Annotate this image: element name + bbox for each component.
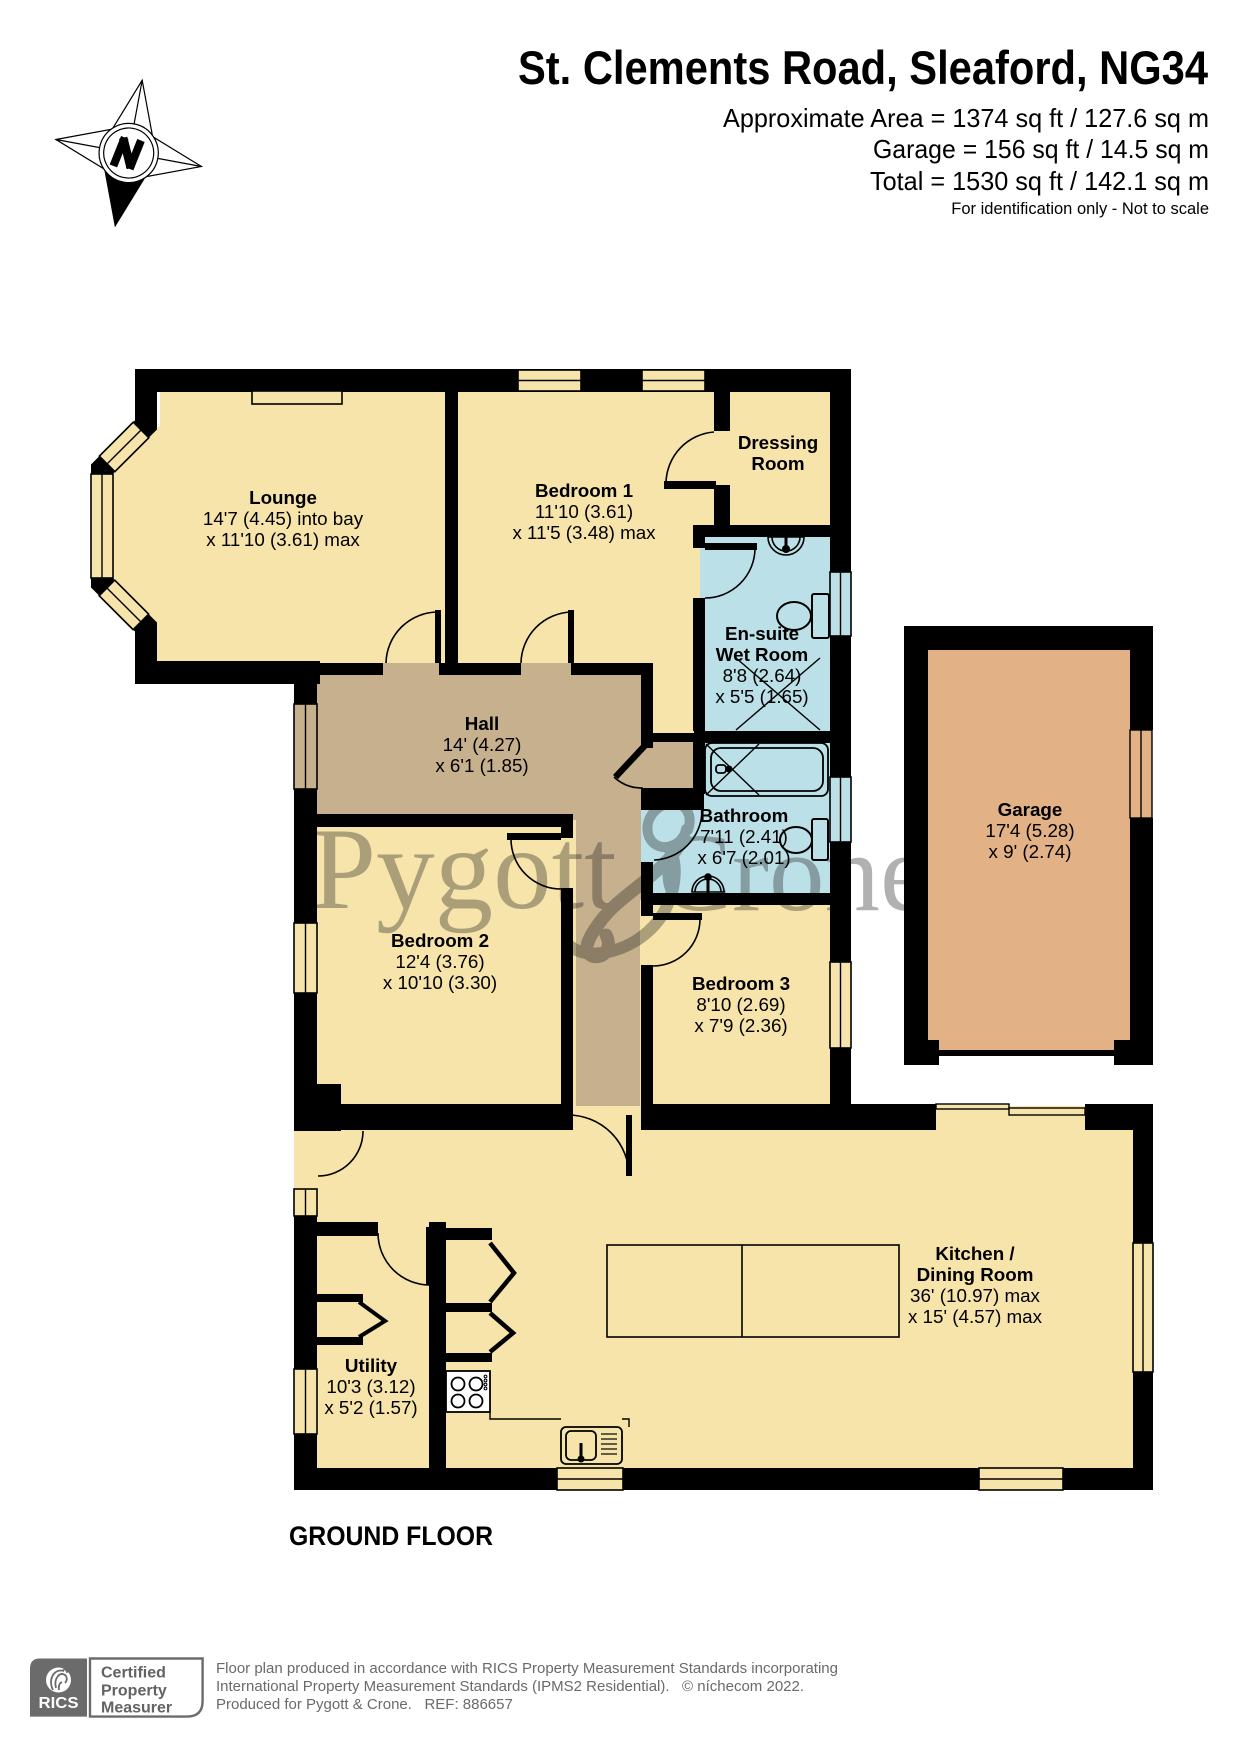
- svg-text:x 10'10 (3.30): x 10'10 (3.30): [383, 972, 497, 993]
- svg-text:Approximate Area = 1374 sq ft: Approximate Area = 1374 sq ft / 127.6 sq…: [723, 103, 1209, 133]
- svg-text:8'8 (2.64): 8'8 (2.64): [723, 665, 802, 686]
- svg-text:Bedroom 2: Bedroom 2: [391, 930, 489, 951]
- svg-text:x 5'5 (1.65): x 5'5 (1.65): [715, 686, 808, 707]
- svg-text:Dressing: Dressing: [738, 432, 818, 453]
- svg-text:14' (4.27): 14' (4.27): [443, 734, 522, 755]
- svg-text:Bedroom 3: Bedroom 3: [692, 973, 790, 994]
- svg-text:x 11'5 (3.48) max: x 11'5 (3.48) max: [512, 522, 656, 543]
- svg-text:St. Clements Road, Sleaford, N: St. Clements Road, Sleaford, NG34: [518, 41, 1208, 94]
- svg-text:x 15' (4.57) max: x 15' (4.57) max: [908, 1306, 1043, 1327]
- svg-text:x 9' (2.74): x 9' (2.74): [989, 841, 1072, 862]
- svg-text:Property: Property: [101, 1683, 167, 1700]
- svg-text:Bedroom 1: Bedroom 1: [535, 480, 633, 501]
- svg-text:Garage = 156 sq ft / 14.5 sq m: Garage = 156 sq ft / 14.5 sq m: [873, 134, 1209, 164]
- svg-text:Kitchen /: Kitchen /: [935, 1243, 1015, 1264]
- svg-text:Utility: Utility: [345, 1355, 398, 1376]
- svg-text:14'7 (4.45) into bay: 14'7 (4.45) into bay: [203, 508, 364, 529]
- svg-text:36' (10.97) max: 36' (10.97) max: [910, 1285, 1041, 1306]
- svg-text:Bathroom: Bathroom: [700, 805, 789, 826]
- svg-text:Dining Room: Dining Room: [917, 1264, 1034, 1285]
- svg-text:x 7'9 (2.36): x 7'9 (2.36): [694, 1015, 787, 1036]
- svg-text:Floor plan produced in accorda: Floor plan produced in accordance with R…: [216, 1660, 838, 1677]
- svg-text:12'4 (3.76): 12'4 (3.76): [395, 951, 484, 972]
- svg-text:x 5'2 (1.57): x 5'2 (1.57): [324, 1397, 417, 1418]
- svg-text:11'10 (3.61): 11'10 (3.61): [535, 501, 633, 522]
- svg-text:Wet Room: Wet Room: [716, 644, 809, 665]
- svg-text:Total = 1530 sq ft / 142.1 sq: Total = 1530 sq ft / 142.1 sq m: [870, 166, 1209, 196]
- svg-text:x 6'7 (2.01): x 6'7 (2.01): [697, 847, 790, 868]
- svg-text:8'10 (2.69): 8'10 (2.69): [696, 994, 785, 1015]
- svg-text:International Property Measure: International Property Measurement Stand…: [216, 1678, 804, 1695]
- svg-text:x 6'1 (1.85): x 6'1 (1.85): [435, 755, 528, 776]
- svg-text:Garage: Garage: [998, 799, 1063, 820]
- svg-text:En-suite: En-suite: [725, 623, 799, 644]
- svg-text:Hall: Hall: [465, 713, 499, 734]
- svg-text:Certified: Certified: [101, 1665, 166, 1682]
- svg-text:RICS: RICS: [39, 1695, 79, 1712]
- svg-text:10'3 (3.12): 10'3 (3.12): [326, 1376, 415, 1397]
- svg-text:GROUND FLOOR: GROUND FLOOR: [289, 1521, 493, 1551]
- svg-text:x 11'10 (3.61) max: x 11'10 (3.61) max: [206, 529, 360, 550]
- svg-text:Measurer: Measurer: [101, 1700, 172, 1717]
- svg-text:Room: Room: [751, 453, 804, 474]
- svg-text:Produced for Pygott & Crone.: Produced for Pygott & Crone. REF: 886657: [216, 1696, 513, 1713]
- svg-text:Lounge: Lounge: [249, 487, 317, 508]
- svg-text:17'4 (5.28): 17'4 (5.28): [985, 820, 1074, 841]
- svg-text:For identification only - Not: For identification only - Not to scale: [951, 200, 1209, 218]
- svg-text:7'11 (2.41): 7'11 (2.41): [700, 826, 788, 847]
